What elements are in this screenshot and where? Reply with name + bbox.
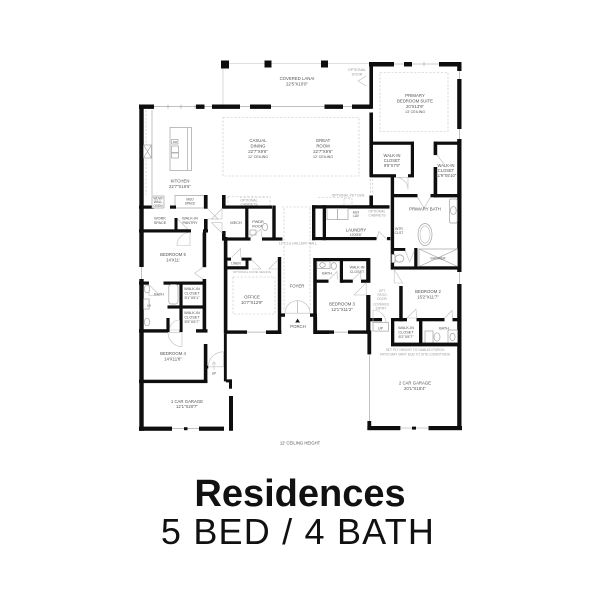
svg-text:5 BED / 4 BATH: 5 BED / 4 BATH (161, 511, 435, 552)
svg-text:ENTRY: ENTRY (376, 307, 388, 311)
svg-text:WALK-IN: WALK-IN (398, 326, 414, 330)
svg-text:OPTIONAL COVE CEILING: OPTIONAL COVE CEILING (233, 270, 272, 274)
svg-text:BEDROOM 5: BEDROOM 5 (160, 252, 186, 257)
svg-text:5'1"X5'1": 5'1"X5'1" (184, 296, 200, 300)
svg-text:LIN: LIN (147, 304, 151, 308)
svg-text:MECH: MECH (230, 221, 241, 225)
svg-text:22'7"X16'5": 22'7"X16'5" (169, 184, 191, 189)
svg-text:PRIMARY: PRIMARY (405, 93, 425, 98)
svg-text:CLST: CLST (395, 231, 404, 235)
svg-text:BEDROOM SUITE: BEDROOM SUITE (397, 99, 433, 104)
svg-text:CLOSET: CLOSET (350, 270, 365, 274)
svg-text:FOYER: FOYER (290, 284, 305, 289)
svg-text:BEDROOM 4: BEDROOM 4 (160, 351, 186, 356)
svg-text:6'2"X5'7": 6'2"X5'7" (398, 335, 414, 339)
svg-text:GREAT: GREAT (316, 138, 331, 143)
svg-text:WORK: WORK (154, 217, 166, 221)
svg-text:WALK-IN: WALK-IN (184, 287, 200, 291)
svg-text:22'5"X10'0": 22'5"X10'0" (286, 82, 308, 87)
svg-text:Residences: Residences (194, 473, 405, 515)
svg-text:PANTRY: PANTRY (182, 221, 198, 225)
svg-text:UP: UP (212, 372, 216, 376)
svg-text:DINING: DINING (250, 144, 266, 149)
svg-text:DW: DW (173, 140, 178, 144)
svg-text:OFFICE: OFFICE (244, 295, 260, 300)
svg-text:PORCH: PORCH (290, 324, 306, 329)
svg-text:CLOSET: CLOSET (184, 292, 200, 296)
svg-text:CLOSET: CLOSET (398, 331, 414, 335)
svg-text:SHOWER: SHOWER (430, 257, 446, 261)
svg-text:12' CEILING: 12' CEILING (313, 155, 333, 159)
svg-text:5'5"X5'7": 5'5"X5'7" (184, 320, 200, 324)
svg-text:22'7"X9'6": 22'7"X9'6" (313, 149, 333, 154)
svg-text:LAV: LAV (353, 214, 360, 218)
svg-text:UP: UP (378, 327, 383, 331)
svg-text:11'9"X5'10": 11'9"X5'10" (436, 173, 457, 178)
svg-text:CABINETS: CABINETS (369, 214, 387, 218)
svg-text:14'X11': 14'X11' (166, 257, 180, 262)
svg-text:12' CLG GALLERY HALL: 12' CLG GALLERY HALL (279, 242, 317, 246)
svg-text:13' CEILING: 13' CEILING (405, 110, 425, 114)
svg-text:OPTIONAL: OPTIONAL (348, 68, 366, 72)
svg-text:BEDROOM 3: BEDROOM 3 (329, 302, 355, 307)
svg-text:SPACE: SPACE (154, 221, 167, 225)
svg-text:12' CEILING HEIGHT: 12' CEILING HEIGHT (280, 440, 321, 445)
svg-text:KITCHEN: KITCHEN (171, 179, 190, 184)
svg-text:20'X13'9": 20'X13'9" (406, 104, 424, 109)
svg-text:SPACE: SPACE (185, 201, 196, 205)
svg-text:WALK-IN: WALK-IN (350, 266, 365, 270)
svg-text:COVERED LANAI: COVERED LANAI (280, 76, 315, 81)
svg-text:DOOR: DOOR (377, 297, 387, 301)
svg-text:2 CAR GARAGE: 2 CAR GARAGE (399, 381, 431, 386)
svg-text:CASUAL: CASUAL (249, 138, 267, 143)
svg-text:22'7"X9'6": 22'7"X9'6" (248, 149, 268, 154)
svg-text:LINEN: LINEN (231, 262, 241, 266)
svg-text:BATH: BATH (322, 272, 332, 276)
svg-text:12'1"X11'2": 12'1"X11'2" (331, 307, 353, 312)
svg-text:CLOSET: CLOSET (184, 316, 200, 320)
svg-text:10'7"X12'9": 10'7"X12'9" (241, 300, 263, 305)
svg-text:9'9"X7'9": 9'9"X7'9" (384, 163, 401, 168)
svg-text:PATIO MAY VARY DUE TO SITE CON: PATIO MAY VARY DUE TO SITE CONDITIONS (380, 352, 451, 356)
svg-text:20'1"X18'4": 20'1"X18'4" (404, 386, 426, 391)
svg-text:OPTIONAL PET DEN: OPTIONAL PET DEN (332, 194, 365, 198)
svg-text:ROOM: ROOM (316, 144, 330, 149)
svg-text:10'X5'6": 10'X5'6" (350, 233, 363, 237)
svg-text:PRIMARY BATH: PRIMARY BATH (409, 207, 441, 212)
svg-text:OVEN: OVEN (153, 204, 163, 208)
svg-text:12'1"X20'7": 12'1"X20'7" (176, 404, 198, 409)
svg-text:BEDROOM 2: BEDROOM 2 (415, 289, 441, 294)
svg-text:14'X11'8": 14'X11'8" (164, 356, 182, 361)
svg-text:15'2"X11'7": 15'2"X11'7" (417, 294, 439, 299)
svg-text:PWDR: PWDR (252, 220, 264, 224)
svg-text:LAUNDRY: LAUNDRY (346, 228, 367, 233)
svg-text:DOOR: DOOR (352, 73, 363, 77)
svg-text:WALK-IN: WALK-IN (184, 311, 200, 315)
svg-text:12' CEILING: 12' CEILING (248, 155, 268, 159)
svg-text:WALK-IN: WALK-IN (182, 217, 198, 221)
